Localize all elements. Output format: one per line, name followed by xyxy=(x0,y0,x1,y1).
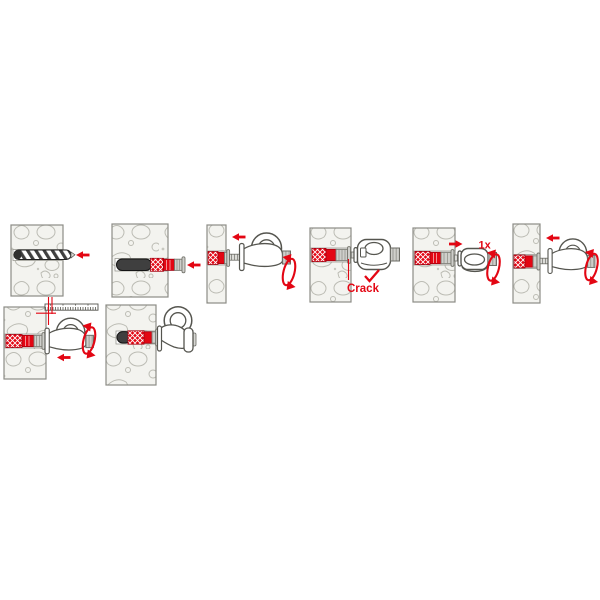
eye-hook-icon xyxy=(240,233,291,271)
push-direction-arrow-icon xyxy=(187,261,201,269)
screw-shaft xyxy=(540,258,548,264)
screw-shaft xyxy=(454,255,458,261)
drill-bit-icon xyxy=(14,250,75,260)
expansion-anchor-icon xyxy=(514,253,540,270)
expansion-anchor-icon xyxy=(117,329,159,346)
tighten-arrow-icon xyxy=(57,354,71,362)
step-6-retighten-hook xyxy=(508,220,600,308)
push-direction-arrow-icon xyxy=(76,251,90,259)
step-2-insert-anchor xyxy=(103,222,203,304)
eye-hook-top-view-icon xyxy=(354,240,400,270)
step-4-collar-cracks: Crack xyxy=(305,222,407,304)
eye-hook-icon xyxy=(548,239,595,274)
expansion-anchor-icon xyxy=(415,250,454,267)
step-8-installed xyxy=(100,293,204,395)
instruction-diagram: Crack 1x xyxy=(0,0,600,600)
step-3-screw-in-hook xyxy=(203,220,303,308)
checkmark-icon xyxy=(365,270,379,281)
wall-block xyxy=(310,228,351,302)
step-7-set-depth xyxy=(0,293,102,395)
eye-hook-icon xyxy=(158,307,197,352)
screw-in-arrow-icon xyxy=(232,233,246,241)
expansion-anchor-icon xyxy=(208,250,230,267)
expansion-anchor-icon xyxy=(117,257,186,273)
tighten-arrow-icon xyxy=(546,234,560,242)
step-5-turn-back-once: 1x xyxy=(408,222,503,307)
eye-hook-icon xyxy=(45,318,93,354)
screw-shaft xyxy=(230,254,240,260)
depth-ruler-icon xyxy=(45,304,98,310)
step-1-drill-hole xyxy=(8,222,100,304)
expansion-anchor-icon xyxy=(312,247,351,264)
expansion-anchor-icon xyxy=(6,333,45,350)
wall-block xyxy=(106,305,156,385)
crack-label: Crack xyxy=(347,283,380,295)
turn-count-label: 1x xyxy=(479,240,492,252)
